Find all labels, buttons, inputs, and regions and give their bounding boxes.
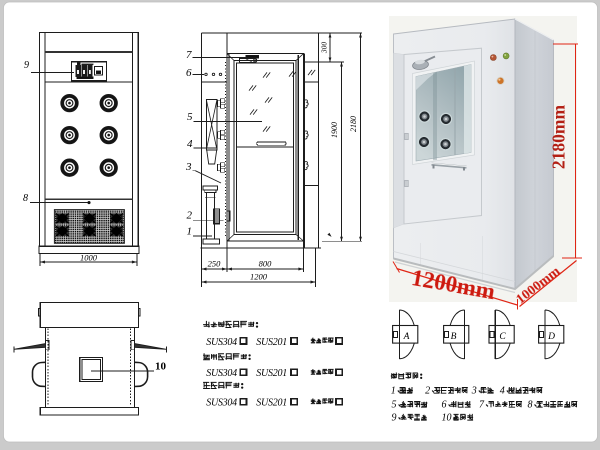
svg-text:SUS304: SUS304 xyxy=(206,337,237,348)
svg-text:3: 3 xyxy=(471,386,477,397)
svg-text:10: 10 xyxy=(155,361,167,373)
svg-text:250: 250 xyxy=(208,258,222,268)
svg-text:2180: 2180 xyxy=(349,116,358,132)
svg-text:4: 4 xyxy=(500,386,505,397)
svg-text:6: 6 xyxy=(441,400,446,411)
svg-text:A: A xyxy=(403,332,410,342)
svg-text:1: 1 xyxy=(391,386,396,397)
svg-text:SUS304: SUS304 xyxy=(206,368,237,379)
svg-text:4: 4 xyxy=(187,138,193,150)
svg-text:9: 9 xyxy=(391,413,396,424)
svg-text:1000: 1000 xyxy=(80,252,98,262)
svg-text:3: 3 xyxy=(185,161,192,173)
svg-text:1200: 1200 xyxy=(250,271,268,281)
svg-text:300: 300 xyxy=(320,42,329,55)
svg-text:7: 7 xyxy=(186,49,192,61)
svg-text:10: 10 xyxy=(441,413,451,424)
svg-text:SUS201: SUS201 xyxy=(256,337,287,348)
svg-text:5: 5 xyxy=(187,111,193,123)
svg-text:SUS201: SUS201 xyxy=(256,368,287,379)
svg-text:1900: 1900 xyxy=(330,122,339,138)
svg-text:2: 2 xyxy=(186,210,192,222)
svg-text:5: 5 xyxy=(391,400,396,411)
svg-text:SUS201: SUS201 xyxy=(256,398,287,409)
svg-text:2: 2 xyxy=(425,386,430,397)
svg-text:D: D xyxy=(547,332,555,342)
svg-text:2180mm: 2180mm xyxy=(549,105,569,170)
svg-text:C: C xyxy=(499,332,506,342)
svg-text:B: B xyxy=(451,332,457,342)
svg-text:800: 800 xyxy=(259,258,273,268)
svg-text:SUS304: SUS304 xyxy=(206,398,237,409)
svg-text:9: 9 xyxy=(24,60,29,71)
svg-text:8: 8 xyxy=(527,400,532,411)
svg-text:8: 8 xyxy=(23,193,28,204)
svg-text:1: 1 xyxy=(186,226,192,238)
svg-text:6: 6 xyxy=(186,67,192,79)
